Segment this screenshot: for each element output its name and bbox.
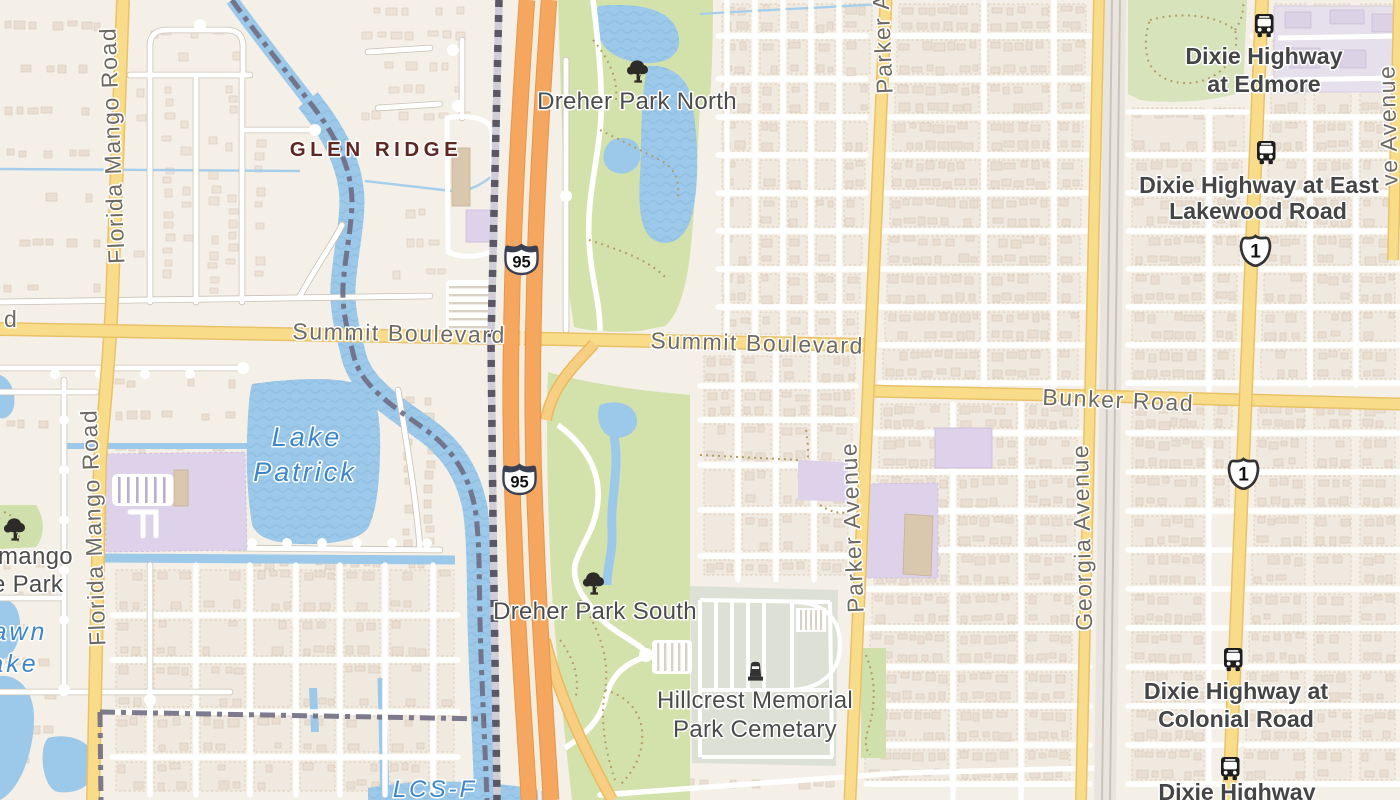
svg-text:Lake: Lake [272, 422, 343, 452]
svg-text:Lakewood Road: Lakewood Road [1169, 198, 1347, 224]
svg-text:mango: mango [0, 543, 73, 570]
svg-text:ve Avenue: ve Avenue [1373, 64, 1400, 186]
svg-text:Dixie Highway: Dixie Highway [1185, 43, 1342, 69]
svg-text:Dixie Highway at East: Dixie Highway at East [1139, 172, 1379, 198]
svg-text:Dixie Highway at: Dixie Highway at [1144, 678, 1329, 704]
svg-text:Colonial Road: Colonial Road [1158, 706, 1314, 732]
svg-text:at Edmore: at Edmore [1207, 71, 1320, 97]
svg-text:Georgia Avenue: Georgia Avenue [1067, 443, 1097, 630]
svg-text:Summit Boulevard: Summit Boulevard [292, 318, 506, 348]
svg-text:Hillcrest Memorial: Hillcrest Memorial [657, 687, 853, 714]
svg-text:GLEN RIDGE: GLEN RIDGE [290, 138, 463, 161]
svg-text:awn: awn [0, 618, 47, 646]
svg-text:Dreher Park South: Dreher Park South [493, 598, 697, 625]
svg-text:e Park: e Park [0, 571, 64, 598]
svg-text:Dreher Park North: Dreher Park North [537, 88, 737, 115]
svg-text:Patrick: Patrick [253, 457, 357, 487]
svg-text:Dixie Highway: Dixie Highway [1158, 779, 1315, 800]
svg-text:d: d [4, 306, 18, 332]
svg-text:LCS-F: LCS-F [393, 776, 477, 800]
svg-text:ake: ake [0, 650, 39, 678]
svg-text:Park Cemetary: Park Cemetary [673, 716, 837, 743]
